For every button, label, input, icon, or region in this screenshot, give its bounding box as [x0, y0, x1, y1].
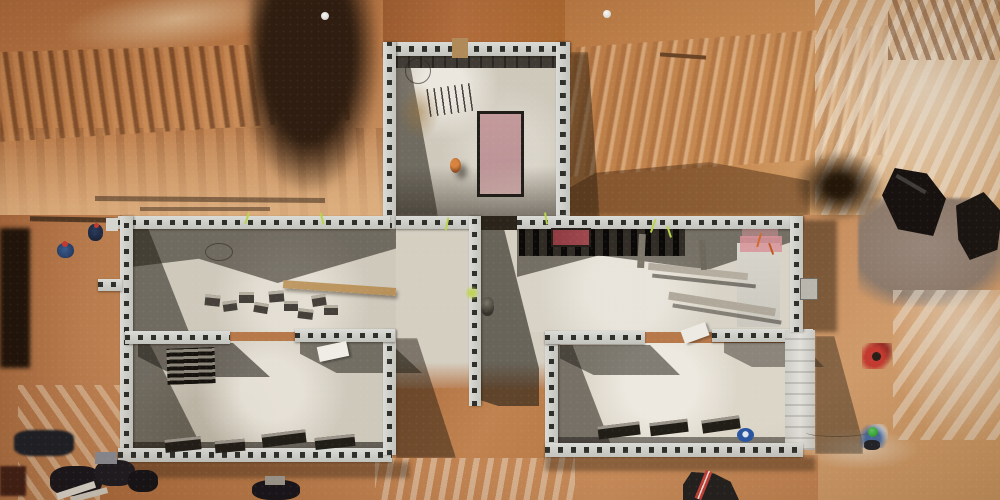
wall-long-left	[118, 216, 390, 229]
shadow-midright-dark-teeth	[519, 229, 685, 256]
block-1	[204, 294, 220, 307]
wall-midright-right	[790, 216, 803, 332]
worker-green-helmet	[868, 427, 878, 437]
formwork-pink-rect	[477, 111, 524, 197]
wall-toproom-right	[556, 42, 570, 228]
wall-long-mid	[396, 216, 476, 229]
wall-west-stub	[98, 279, 122, 291]
wall-lowerleft-top1	[125, 331, 230, 344]
worker-green-bag	[864, 440, 880, 450]
boards-left-3	[140, 207, 270, 211]
wall-lowerleft-top2	[295, 329, 395, 342]
wall-central	[469, 216, 481, 406]
wood-piece-on-wall	[452, 38, 468, 58]
doorway-dark	[476, 216, 517, 230]
construction-site-photo	[0, 0, 1000, 500]
debris-dark-patch	[793, 150, 885, 222]
hanging-wire-loop	[405, 58, 431, 84]
worker-red-head	[872, 352, 881, 361]
shadow-toproom-bottom	[396, 166, 556, 216]
lime-gear-pile	[464, 286, 480, 300]
rope-line	[806, 428, 868, 437]
block-7	[297, 308, 313, 320]
worker-central-wall	[481, 297, 494, 316]
worker-blue-1-helmet-red	[94, 223, 99, 228]
wall-toproom-top	[383, 42, 570, 56]
block-6	[284, 301, 298, 311]
worker-orange-toproom	[450, 158, 461, 173]
block-5	[269, 290, 285, 302]
dirt-corner-striations	[888, 0, 1000, 60]
white-form-bit	[106, 218, 118, 231]
shadow-outside-midright	[803, 220, 837, 332]
blue-bucket-lid	[737, 428, 754, 442]
block-2	[222, 300, 237, 312]
grey-piece-bag2	[265, 476, 285, 485]
wall-lowerleft-bottom	[118, 448, 392, 462]
wire-loop-leftwing	[205, 243, 233, 261]
dirt-above-top-room	[383, 0, 573, 44]
wash-right-low	[893, 290, 1000, 440]
wall-lowerleft-right	[383, 330, 396, 455]
wall-lowerright-bottom	[545, 443, 803, 457]
form-panel-red	[551, 228, 591, 247]
wall-lowerright-left	[545, 332, 558, 455]
white-sphere-1	[321, 12, 329, 20]
dark-spoil-wedge	[250, 0, 380, 192]
dark-vehicle-left	[14, 430, 74, 456]
worker-blue-2-helmet-red	[62, 241, 68, 247]
white-sphere-2	[603, 10, 611, 18]
wall-bracket	[800, 278, 818, 300]
wall-lowerright-top1	[545, 331, 645, 344]
dark-red-spot-corner	[0, 466, 26, 496]
trench-dark-strip	[0, 228, 30, 368]
block-9	[324, 305, 338, 315]
block-3	[239, 292, 254, 303]
shadow-below-lowerright	[545, 457, 815, 471]
black-bag-1c	[128, 470, 158, 492]
grey-piece-bags	[95, 452, 117, 464]
grate-pallet	[166, 347, 215, 385]
wall-toproom-left	[383, 42, 396, 228]
